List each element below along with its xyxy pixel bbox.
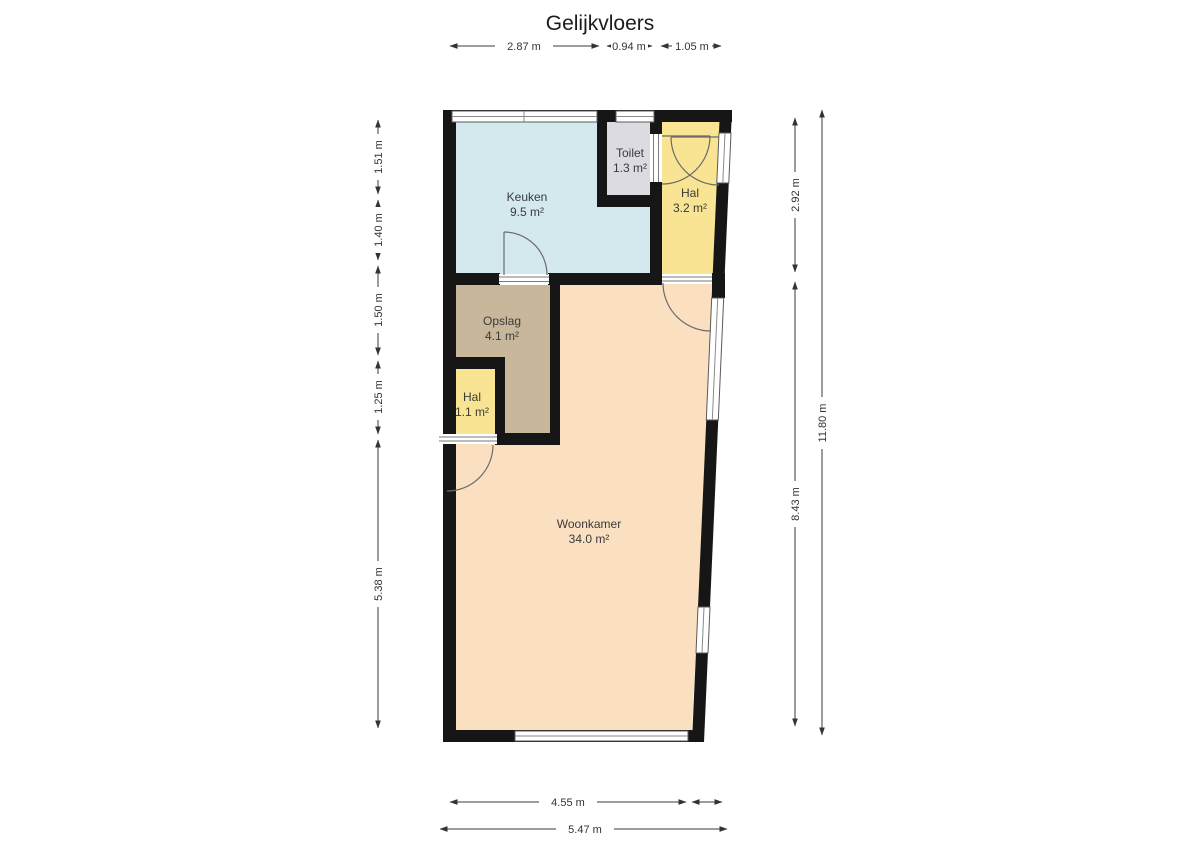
doorframe-toilet <box>650 134 662 182</box>
dim-label-right-2: 8.43 m <box>790 487 802 521</box>
dimension-right: 2.92 m 8.43 m 11.80 m <box>788 110 829 735</box>
room-label-toilet: Toilet <box>616 146 645 160</box>
dim-label-left-1: 1.51 m <box>373 140 385 174</box>
wall-opslag-hal-divider <box>443 357 504 369</box>
wall-hal-onder-right <box>495 357 505 445</box>
wall-keuken-bottom-left <box>443 273 500 285</box>
room-area-hal-boven: 3.2 m² <box>673 201 707 215</box>
room-label-keuken: Keuken <box>507 190 548 204</box>
wall-hal-left-lower <box>650 182 662 285</box>
dim-label-top-3: 1.05 m <box>675 41 709 53</box>
wall-hal-corner-block <box>712 273 725 298</box>
wall-exterior-left <box>443 110 456 742</box>
dimension-top: 2.87 m 0.94 m 1.05 m <box>450 39 721 53</box>
dim-label-left-2: 1.40 m <box>373 213 385 247</box>
dim-label-bottom-1: 4.55 m <box>551 797 585 809</box>
room-area-toilet: 1.3 m² <box>613 161 647 175</box>
room-area-hal-onder: 1.1 m² <box>455 405 489 419</box>
dim-label-right-3: 11.80 m <box>817 404 829 443</box>
dimension-left: 1.51 m 1.40 m 1.50 m 1.25 m 5.38 m <box>371 120 385 728</box>
page-title: Gelijkvloers <box>546 12 655 35</box>
room-area-keuken: 9.5 m² <box>510 205 544 219</box>
wall-hal-left-upper <box>650 122 662 134</box>
wall-keuken-toilet <box>597 122 607 207</box>
wall-keuken-bottom-right <box>548 273 662 285</box>
dim-label-left-4: 1.25 m <box>373 380 385 414</box>
room-area-opslag: 4.1 m² <box>485 329 519 343</box>
dim-label-left-3: 1.50 m <box>373 293 385 327</box>
floorplan-page: Gelijkvloers <box>0 0 1200 849</box>
wall-hal-onder-bottom <box>495 433 560 445</box>
threshold-halonder-woonkamer <box>439 434 497 444</box>
room-label-opslag: Opslag <box>483 314 521 328</box>
room-area-woonkamer: 34.0 m² <box>569 532 610 546</box>
dim-label-left-5: 5.38 m <box>373 567 385 601</box>
wall-opslag-right <box>550 285 560 444</box>
threshold-keuken-opslag <box>499 274 549 284</box>
floorplan-canvas: Gelijkvloers <box>0 0 1200 849</box>
dim-label-bottom-2: 5.47 m <box>568 824 602 836</box>
threshold-hal-woonkamer <box>662 274 712 283</box>
room-label-hal-boven: Hal <box>681 186 699 200</box>
dim-label-top-1: 2.87 m <box>507 41 541 53</box>
dim-label-right-1: 2.92 m <box>790 178 802 212</box>
dim-label-top-2: 0.94 m <box>612 41 646 53</box>
room-label-hal-onder: Hal <box>463 390 481 404</box>
room-label-woonkamer: Woonkamer <box>557 517 621 531</box>
dimension-bottom: 4.55 m 5.47 m <box>440 795 727 836</box>
